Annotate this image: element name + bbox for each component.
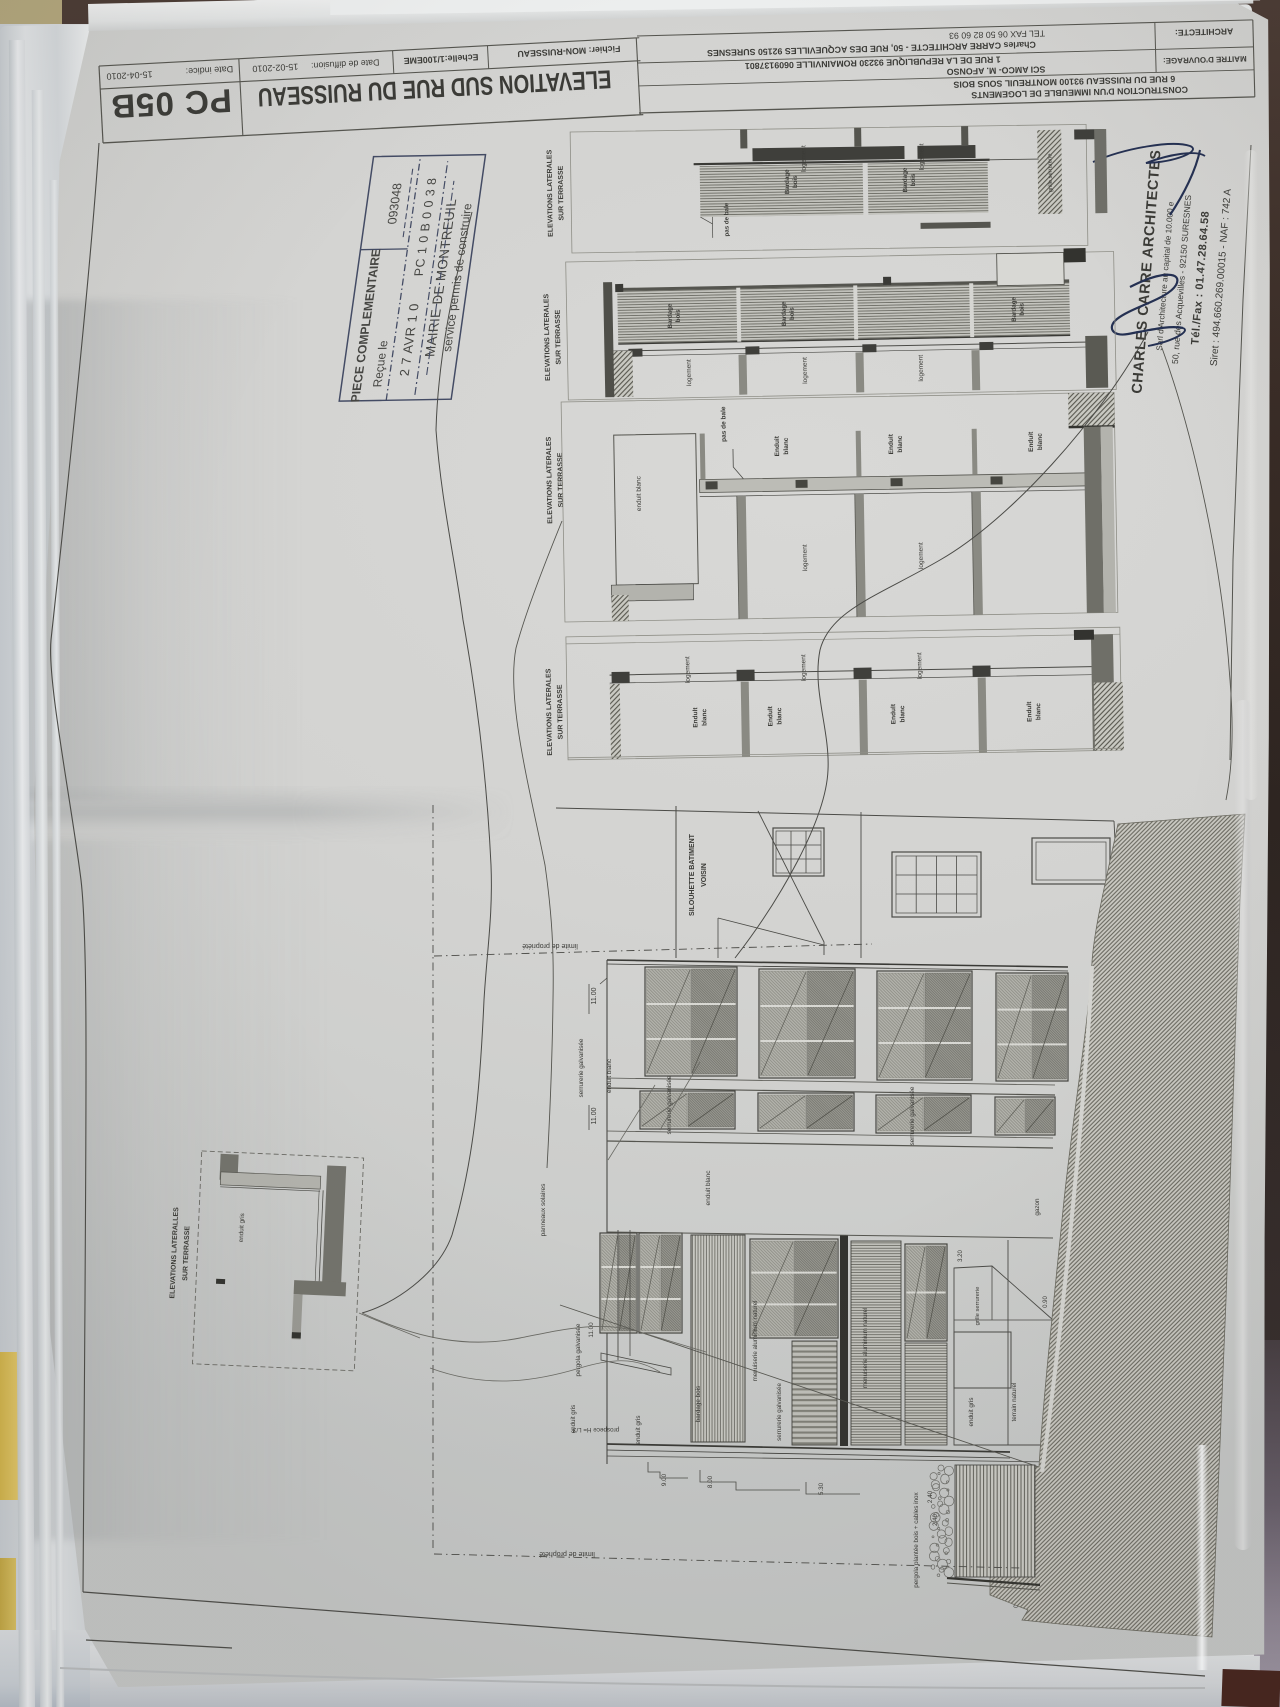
- svg-text:0.90: 0.90: [1043, 1296, 1049, 1308]
- svg-text:bois: bois: [675, 309, 682, 322]
- svg-text:pergola plantée bois + cables: pergola plantée bois + cables inox: [913, 1491, 920, 1587]
- svg-text:grille serrurerie: grille serrurerie: [975, 1287, 981, 1326]
- svg-text:blanc: blanc: [1035, 703, 1042, 720]
- svg-text:limite de propriété: limite de propriété: [539, 1550, 595, 1557]
- svg-text:bois: bois: [789, 307, 796, 320]
- svg-text:Endult: Endult: [890, 703, 897, 724]
- svg-text:enduit gris: enduit gris: [570, 1405, 577, 1434]
- svg-text:grille serrurerie: grille serrurerie: [1048, 154, 1055, 193]
- svg-text:blanc: blanc: [776, 707, 783, 724]
- svg-text:SUR TERRASSE: SUR TERRASSE: [555, 309, 563, 364]
- svg-text:3.20: 3.20: [958, 1250, 964, 1262]
- svg-text:enduit blanc: enduit blanc: [635, 475, 643, 511]
- svg-text:ELEVATIONS LATERALES: ELEVATIONS LATERALES: [546, 149, 554, 237]
- svg-text:logement: logement: [802, 544, 809, 571]
- svg-text:menuiserie aluminium naturel: menuiserie aluminium naturel: [862, 1308, 869, 1389]
- svg-text:blanc: blanc: [1037, 433, 1044, 450]
- svg-text:serrurerie galvanisée: serrurerie galvanisée: [666, 1075, 673, 1134]
- svg-text:enduit gris: enduit gris: [238, 1213, 246, 1242]
- svg-text:Date indice:: Date indice:: [185, 64, 233, 76]
- svg-text:enduit blanc: enduit blanc: [705, 1170, 712, 1206]
- svg-text:endult blanc: endult blanc: [606, 1059, 613, 1093]
- svg-text:2 7 AVR 1 0: 2 7 AVR 1 0: [397, 303, 422, 376]
- svg-text:logement: logement: [800, 654, 807, 681]
- svg-text:limite de propriété: limite de propriété: [522, 942, 578, 949]
- svg-text:SUR TERRASSE: SUR TERRASSE: [557, 452, 565, 507]
- svg-text:blanc: blanc: [899, 705, 906, 722]
- svg-text:SUR TERRASSE: SUR TERRASSE: [558, 165, 566, 220]
- svg-text:menuiserie aluminium naturel: menuiserie aluminium naturel: [752, 1301, 759, 1382]
- svg-text:panneaux solaires: panneaux solaires: [540, 1183, 547, 1237]
- svg-text:enduit gris: enduit gris: [635, 1415, 642, 1444]
- svg-text:Tél./Fax : 01.47.28.64.58: Tél./Fax : 01.47.28.64.58: [1189, 211, 1211, 346]
- svg-text:5.30: 5.30: [818, 1482, 825, 1495]
- svg-text:9.00: 9.00: [661, 1473, 668, 1486]
- svg-text:ARCHITECTE:: ARCHITECTE:: [1175, 26, 1234, 38]
- svg-text:Endult: Endult: [767, 705, 774, 726]
- svg-text:2.40: 2.40: [933, 1514, 939, 1526]
- svg-text:15-02-2010: 15-02-2010: [252, 62, 299, 74]
- svg-text:SUR TERRASSE: SUR TERRASSE: [557, 684, 565, 739]
- svg-text:pas de bale: pas de bale: [720, 406, 728, 442]
- svg-text:enduit gris: enduit gris: [968, 1397, 975, 1426]
- svg-text:Enduit: Enduit: [888, 433, 895, 454]
- svg-text:Bardage: Bardage: [780, 301, 787, 326]
- svg-text:logement: logement: [918, 542, 925, 569]
- svg-text:Enduit: Enduit: [774, 435, 781, 456]
- svg-text:prospece H= L/3: prospece H= L/3: [572, 1426, 619, 1433]
- svg-text:Bardage: Bardage: [902, 167, 909, 192]
- svg-text:Echelle:1/100EME: Echelle:1/100EME: [403, 52, 478, 66]
- svg-text:logement: logement: [802, 357, 810, 384]
- svg-text:ELEVATIONS LATERALLES: ELEVATIONS LATERALLES: [169, 1207, 180, 1299]
- svg-text:pas de bale: pas de bale: [723, 202, 731, 236]
- svg-text:blanc: blanc: [783, 437, 790, 454]
- svg-text:TEL FAX 06 50 82 60 93: TEL FAX 06 50 82 60 93: [949, 28, 1045, 41]
- svg-text:MAITRE D'OUVRAGE:: MAITRE D'OUVRAGE:: [1163, 54, 1247, 65]
- svg-text:Reçue le: Reçue le: [370, 340, 391, 387]
- svg-text:logement: logement: [918, 355, 926, 382]
- svg-text:SILOUHETTE BATIMENT: SILOUHETTE BATIMENT: [689, 833, 696, 916]
- svg-text:blanc: blanc: [897, 435, 904, 452]
- svg-text:Date de diffusion:: Date de diffusion:: [311, 57, 380, 71]
- svg-text:serrurerie galvanisée: serrurerie galvanisée: [909, 1086, 916, 1145]
- svg-text:ELEVATIONS LATERALES: ELEVATIONS LATERALES: [543, 293, 552, 381]
- svg-text:blanc: blanc: [701, 709, 708, 726]
- svg-text:logement: logement: [800, 145, 807, 172]
- svg-text:PC 05B: PC 05B: [109, 82, 232, 125]
- svg-text:CHARLES CARRE ARCHITECTES: CHARLES CARRE ARCHITECTES: [1129, 149, 1164, 394]
- svg-text:Bardage: Bardage: [1010, 296, 1017, 321]
- svg-text:Endult: Endult: [692, 707, 699, 728]
- svg-text:bois: bois: [1019, 302, 1026, 315]
- svg-text:Bardage: Bardage: [784, 169, 791, 194]
- svg-text:VOISIN: VOISIN: [701, 863, 708, 887]
- svg-text:11.00: 11.00: [591, 987, 598, 1004]
- svg-text:bois: bois: [792, 175, 799, 188]
- svg-text:gazon: gazon: [1034, 1198, 1041, 1216]
- svg-text:bardage bois: bardage bois: [695, 1386, 702, 1422]
- svg-text:serrurerie galvanisée: serrurerie galvanisée: [578, 1038, 585, 1097]
- svg-text:Endult: Endult: [1026, 701, 1033, 722]
- svg-text:logement: logement: [686, 359, 694, 386]
- svg-text:SUR TERRASSE: SUR TERRASSE: [182, 1226, 191, 1281]
- svg-text:Siret : 494.660.269.00015 - NA: Siret : 494.660.269.00015 - NAF : 742 A: [1209, 188, 1234, 367]
- svg-text:11.00: 11.00: [588, 1322, 595, 1338]
- svg-text:11.00: 11.00: [591, 1107, 598, 1124]
- svg-text:ELEVATIONS LATERALES: ELEVATIONS LATERALES: [546, 436, 555, 524]
- svg-text:logement: logement: [918, 143, 925, 170]
- svg-text:Fichier: MON-RUISSEAU: Fichier: MON-RUISSEAU: [517, 44, 621, 59]
- svg-text:terrain naturel: terrain naturel: [1011, 1383, 1018, 1422]
- svg-text:logement: logement: [916, 652, 923, 679]
- svg-text:serrurerie galvanisée: serrurerie galvanisée: [776, 1383, 783, 1441]
- svg-text:Bardage: Bardage: [667, 303, 674, 328]
- svg-text:Enduit: Enduit: [1028, 431, 1035, 452]
- svg-text:15-04-2010: 15-04-2010: [106, 69, 153, 81]
- svg-text:logement: logement: [684, 656, 691, 683]
- svg-text:ELEVATIONS LATERALES: ELEVATIONS LATERALES: [545, 668, 554, 756]
- svg-text:093048: 093048: [385, 183, 405, 225]
- svg-text:bois: bois: [910, 173, 917, 186]
